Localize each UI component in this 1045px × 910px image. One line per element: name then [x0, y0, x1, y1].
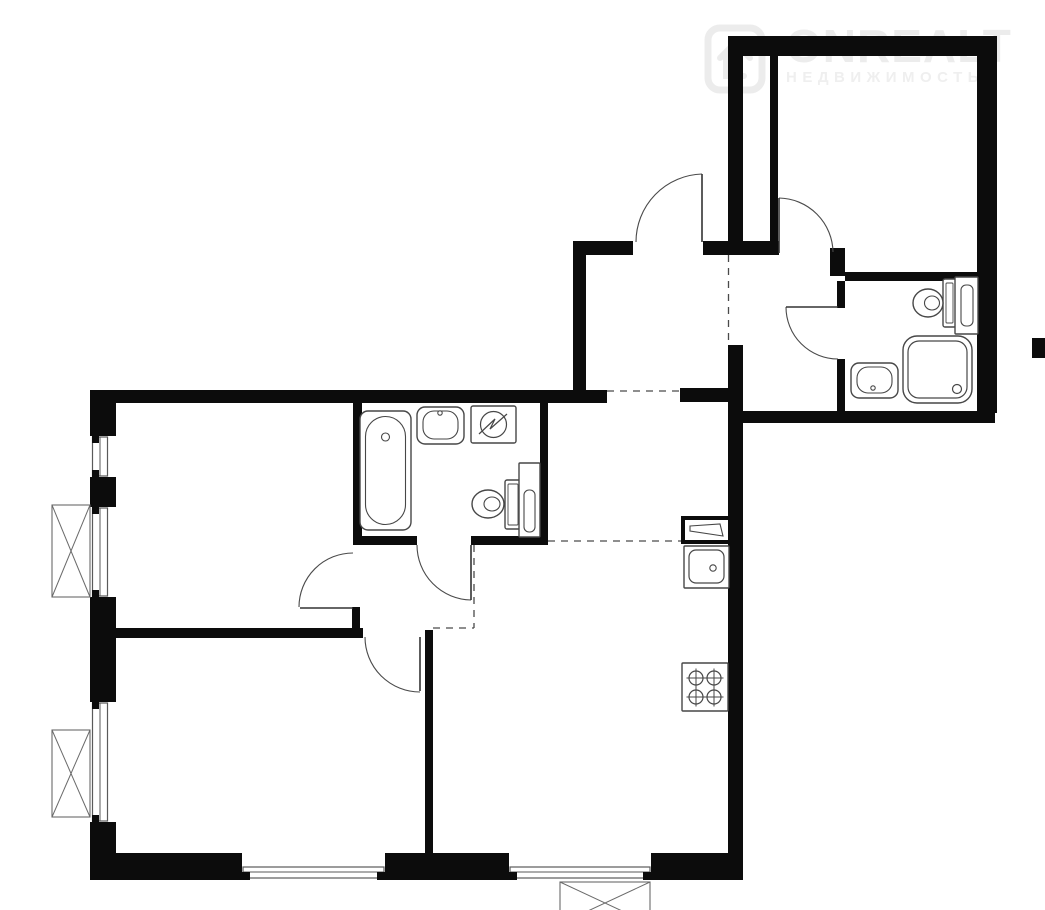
bathroom1-sink-faucet — [438, 411, 442, 415]
wall — [353, 536, 417, 545]
bathroom1-cabinet-inner — [524, 490, 535, 532]
window-jamb — [92, 436, 99, 443]
wall — [728, 345, 743, 880]
stove-4-burners — [682, 663, 728, 711]
bathroom2-door-swing-arc — [786, 307, 838, 359]
bedroom2-door-swing-arc — [365, 637, 420, 692]
wall — [352, 607, 360, 633]
wall — [977, 36, 997, 413]
wall — [680, 388, 728, 402]
wall — [743, 411, 995, 423]
wall — [728, 36, 743, 255]
bathroom2-towel-rail-inner — [961, 285, 973, 326]
living-room-door-swing-arc — [299, 553, 353, 607]
bathroom2-sink-faucet — [871, 386, 875, 390]
entrance-door-swing-arc — [636, 174, 702, 242]
window-jamb — [643, 872, 651, 880]
window-jamb — [92, 590, 99, 597]
bathroom1-door-swing-arc — [417, 545, 471, 600]
wall — [703, 241, 779, 255]
bathtub-drain — [382, 433, 390, 441]
window-jamb — [377, 872, 385, 880]
wall — [385, 853, 509, 880]
wall — [90, 853, 242, 880]
wall — [830, 248, 845, 276]
wall — [540, 400, 548, 545]
window-jamb — [92, 702, 99, 709]
wall — [90, 390, 116, 436]
wall — [651, 853, 743, 880]
bathroom1-toilet-bowl-inner — [484, 497, 500, 511]
ac-unit-box — [560, 882, 650, 910]
window-jamb — [92, 507, 99, 514]
wall — [425, 630, 433, 853]
window-jamb — [242, 872, 250, 880]
kitchen-sink-drain — [710, 565, 716, 571]
wall — [90, 477, 116, 507]
kitchen-sink-basin — [689, 550, 724, 583]
floor-plan — [0, 0, 1045, 910]
bathroom2-toilet-bowl-inner — [925, 296, 940, 310]
window-jamb — [509, 872, 517, 880]
bathroom1-toilet-cistern-lid — [508, 484, 518, 525]
bedroom-door-swing-arc — [779, 198, 833, 252]
wall — [1032, 338, 1045, 358]
floorplan-image: ONREALT НЕДВИЖИМОСТЬ — [0, 0, 1045, 910]
shower-tray-drain — [953, 385, 962, 394]
wall — [90, 628, 363, 638]
washing-machine-drum — [481, 412, 507, 438]
wall — [90, 390, 607, 403]
wall — [770, 52, 778, 242]
window-jamb — [92, 470, 99, 477]
wall — [573, 241, 586, 393]
bathroom2-toilet-cistern-lid — [946, 283, 953, 323]
window-jamb — [92, 815, 99, 822]
wall — [728, 36, 997, 56]
wall — [837, 281, 845, 308]
wall — [90, 597, 116, 702]
wall — [837, 359, 845, 412]
